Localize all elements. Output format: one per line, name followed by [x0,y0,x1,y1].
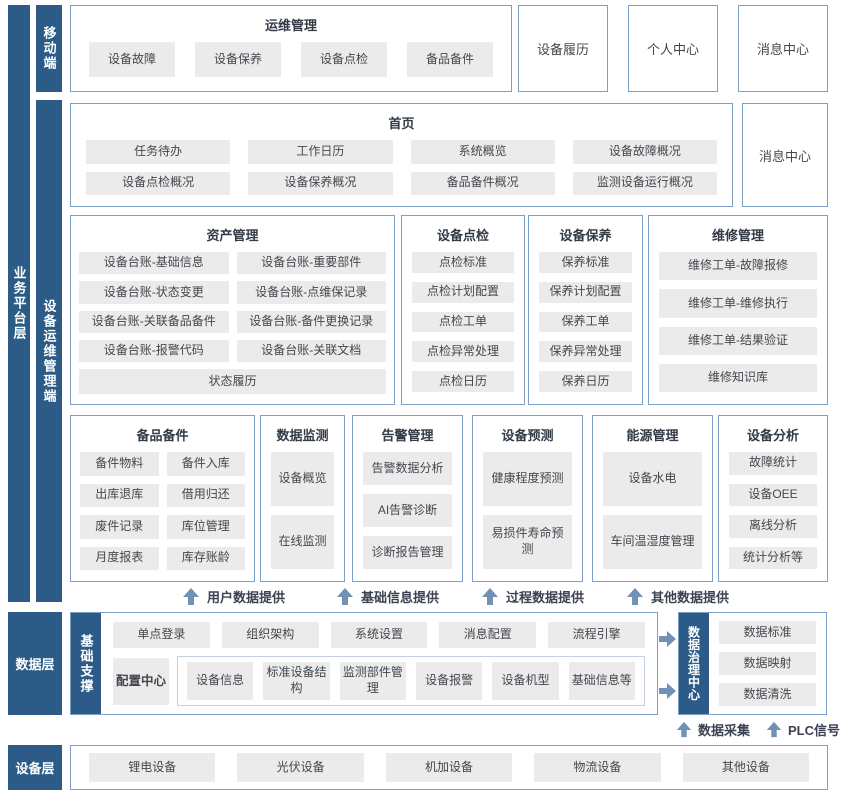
section-title-device-inspection: 设备点检 [402,216,524,252]
menu-item: 监测设备运行概况 [573,172,717,196]
section-title-device-maintenance: 设备保养 [529,216,642,252]
section-spare-parts: 备品备件 备件物料备件入库出库退库借用归还废件记录库位管理月度报表库存账龄 [70,415,255,582]
layer-label-data-layer: 数据层 [8,612,62,715]
menu-item: 设备机型 [492,662,558,700]
menu-item: 保养标准 [539,252,632,273]
menu-item: 系统设置 [331,622,428,648]
menu-item: 告警数据分析 [363,452,452,485]
menu-item: 设备报警 [416,662,482,700]
menu-item: 设备OEE [729,484,817,507]
asset-items: 设备台账-基础信息设备台账-重要部件设备台账-状态变更设备台账-点维保记录设备台… [71,252,394,362]
section-device-analysis: 设备分析 故障统计设备OEE离线分析统计分析等 [718,415,828,582]
menu-item: 保养计划配置 [539,282,632,303]
section-asset-management: 资产管理 设备台账-基础信息设备台账-重要部件设备台账-状态变更设备台账-点维保… [70,215,395,405]
layer-label-business-platform: 业务平台层 [8,5,30,602]
menu-item: 其他设备 [683,753,809,782]
section-ops-management: 运维管理 设备故障设备保养设备点检备品备件 [70,5,512,92]
menu-item: 数据清洗 [719,683,816,706]
layer-label-device-ops-client: 设备运维管理端 [36,100,62,602]
menu-item: 设备台账-状态变更 [79,281,229,303]
flow-basic-info: 基础信息提供 [337,585,439,607]
menu-item: 光伏设备 [237,753,363,782]
section-device-inspection: 设备点检 点检标准点检计划配置点检工单点检异常处理点检日历 [401,215,525,405]
flow-other-data: 其他数据提供 [627,585,729,607]
alarm-items: 告警数据分析AI告警诊断诊断报告管理 [353,452,462,581]
menu-item: 诊断报告管理 [363,536,452,569]
menu-item: 设备水电 [603,452,702,506]
layer-label-mobile: 移动端 [36,5,62,92]
menu-item: 保养工单 [539,312,632,333]
menu-item: 维修工单-维修执行 [659,289,817,317]
flow-label: 数据采集 [698,720,750,739]
menu-item: 维修知识库 [659,364,817,392]
menu-item: 备件物料 [80,452,159,476]
flow-label: 用户数据提供 [207,587,285,606]
menu-item: 点检日历 [412,371,514,392]
section-title-repair-management: 维修管理 [649,216,827,252]
section-title-ops-management: 运维管理 [71,6,511,42]
menu-item: 出库退库 [80,484,159,508]
menu-item: 废件记录 [80,515,159,539]
menu-item: 维修工单-结果验证 [659,327,817,355]
menu-item: 数据映射 [719,652,816,675]
menu-item: 设备台账-关联备品备件 [79,311,229,333]
menu-item: 离线分析 [729,515,817,538]
box-device-history: 设备履历 [518,5,608,92]
up-arrow-icon [627,588,643,605]
maintenance-items: 保养标准保养计划配置保养工单保养异常处理保养日历 [529,252,642,404]
basic-support-label: 基础支撑 [71,613,101,714]
inspection-items: 点检标准点检计划配置点检工单点检异常处理点检日历 [402,252,524,404]
up-arrow-icon [337,588,353,605]
menu-item: 监测部件管理 [340,662,406,700]
basic-support-top-items: 单点登录组织架构系统设置消息配置流程引擎 [113,622,645,648]
prediction-items: 健康程度预测易损件寿命预测 [473,452,582,581]
repair-items: 维修工单-故障报修维修工单-维修执行维修工单-结果验证维修知识库 [649,252,827,404]
menu-item: 设备台账-点维保记录 [237,281,387,303]
menu-item: 任务待办 [86,140,230,164]
data-governance-label: 数据治理中心 [679,613,709,714]
section-device-layer: 锂电设备光伏设备机加设备物流设备其他设备 [70,745,828,790]
section-alarm-management: 告警管理 告警数据分析AI告警诊断诊断报告管理 [352,415,463,582]
menu-item: 物流设备 [534,753,660,782]
master-data-subbox: 设备信息标准设备结构监测部件管理设备报警设备机型基础信息等 [177,656,645,706]
basic-support-content: 单点登录组织架构系统设置消息配置流程引擎 配置中心 设备信息标准设备结构监测部件… [101,613,657,714]
section-title-device-analysis: 设备分析 [719,416,827,452]
flow-label: 其他数据提供 [651,587,729,606]
home-items: 任务待办工作日历系统概览设备故障概况设备点检概况设备保养概况备品备件概况监测设备… [71,140,732,206]
up-arrow-icon [183,588,199,605]
menu-item: 设备保养概况 [248,172,392,196]
section-title-alarm-management: 告警管理 [353,416,462,452]
menu-item: 易损件寿命预测 [483,515,572,569]
section-repair-management: 维修管理 维修工单-故障报修维修工单-维修执行维修工单-结果验证维修知识库 [648,215,828,405]
menu-item: 备品备件 [407,42,493,77]
architecture-diagram: 业务平台层 移动端 设备运维管理端 数据层 设备层 运维管理 设备故障设备保养设… [0,0,841,794]
layer-label-device-layer: 设备层 [8,745,62,790]
menu-item: 备品备件概况 [411,172,555,196]
menu-item: 备件入库 [167,452,246,476]
menu-item: 点检异常处理 [412,341,514,362]
section-data-monitoring: 数据监测 设备概览在线监测 [260,415,345,582]
box-message-center-2: 消息中心 [742,103,828,207]
flow-label: PLC信号 [788,720,840,739]
right-arrow-icon [659,683,676,699]
flow-process-data: 过程数据提供 [482,585,584,607]
menu-item: 单点登录 [113,622,210,648]
menu-item: 点检计划配置 [412,282,514,303]
menu-item-status-history: 状态履历 [79,369,386,394]
section-title-energy-management: 能源管理 [593,416,712,452]
data-monitoring-items: 设备概览在线监测 [261,452,344,581]
up-arrow-icon [482,588,498,605]
menu-item: 数据标准 [719,621,816,644]
menu-item: 设备台账-基础信息 [79,252,229,274]
section-device-maintenance: 设备保养 保养标准保养计划配置保养工单保养异常处理保养日历 [528,215,643,405]
energy-items: 设备水电车间温湿度管理 [593,452,712,581]
section-data-governance-center: 数据治理中心 数据标准数据映射数据清洗 [678,612,827,715]
menu-item: 库存账龄 [167,547,246,571]
menu-item: 保养异常处理 [539,341,632,362]
section-device-prediction: 设备预测 健康程度预测易损件寿命预测 [472,415,583,582]
section-title-asset-management: 资产管理 [71,216,394,252]
menu-item: 维修工单-故障报修 [659,252,817,280]
section-basic-support: 基础支撑 单点登录组织架构系统设置消息配置流程引擎 配置中心 设备信息标准设备结… [70,612,658,715]
right-arrow-icon [659,631,676,647]
menu-item: 库位管理 [167,515,246,539]
menu-item: 标准设备结构 [263,662,329,700]
up-arrow-icon [767,721,781,736]
section-title-data-monitoring: 数据监测 [261,416,344,452]
section-home: 首页 任务待办工作日历系统概览设备故障概况设备点检概况设备保养概况备品备件概况监… [70,103,733,207]
menu-item: 设备台账-重要部件 [237,252,387,274]
config-center-box: 配置中心 [113,658,169,705]
menu-item: 点检工单 [412,312,514,333]
menu-item: 设备故障 [89,42,175,77]
menu-item: 设备信息 [187,662,253,700]
section-title-spare-parts: 备品备件 [71,416,254,452]
flow-plc-signal: PLC信号 [766,719,840,739]
box-personal-center: 个人中心 [628,5,718,92]
menu-item: 设备概览 [271,452,334,506]
flow-user-data: 用户数据提供 [183,585,285,607]
menu-item: AI告警诊断 [363,494,452,527]
ops-management-items: 设备故障设备保养设备点检备品备件 [71,42,511,91]
menu-item: 设备保养 [195,42,281,77]
menu-item: 设备点检概况 [86,172,230,196]
menu-item: 点检标准 [412,252,514,273]
basic-support-bottom-row: 配置中心 设备信息标准设备结构监测部件管理设备报警设备机型基础信息等 [113,656,645,706]
flow-data-collection: 数据采集 [676,719,750,739]
menu-item: 在线监测 [271,515,334,569]
section-energy-management: 能源管理 设备水电车间温湿度管理 [592,415,713,582]
menu-item: 设备台账-关联文档 [237,340,387,362]
menu-item: 车间温湿度管理 [603,515,702,569]
menu-item: 保养日历 [539,371,632,392]
menu-item: 故障统计 [729,452,817,475]
menu-item: 工作日历 [248,140,392,164]
menu-item: 系统概览 [411,140,555,164]
data-governance-items: 数据标准数据映射数据清洗 [709,613,826,714]
flow-label: 过程数据提供 [506,587,584,606]
menu-item: 消息配置 [439,622,536,648]
analysis-items: 故障统计设备OEE离线分析统计分析等 [719,452,827,581]
menu-item: 设备台账-备件更换记录 [237,311,387,333]
menu-item: 基础信息等 [569,662,635,700]
menu-item: 组织架构 [222,622,319,648]
section-title-device-prediction: 设备预测 [473,416,582,452]
menu-item: 锂电设备 [89,753,215,782]
menu-item: 健康程度预测 [483,452,572,506]
up-arrow-icon [677,721,691,736]
menu-item: 月度报表 [80,547,159,571]
menu-item: 设备台账-报警代码 [79,340,229,362]
spare-parts-items: 备件物料备件入库出库退库借用归还废件记录库位管理月度报表库存账龄 [71,452,254,581]
menu-item: 机加设备 [386,753,512,782]
menu-item: 统计分析等 [729,547,817,570]
flow-label: 基础信息提供 [361,587,439,606]
menu-item: 设备点检 [301,42,387,77]
menu-item: 设备故障概况 [573,140,717,164]
device-layer-items: 锂电设备光伏设备机加设备物流设备其他设备 [71,753,827,782]
menu-item: 流程引擎 [548,622,645,648]
box-message-center: 消息中心 [738,5,828,92]
section-title-home: 首页 [71,104,732,140]
menu-item: 借用归还 [167,484,246,508]
